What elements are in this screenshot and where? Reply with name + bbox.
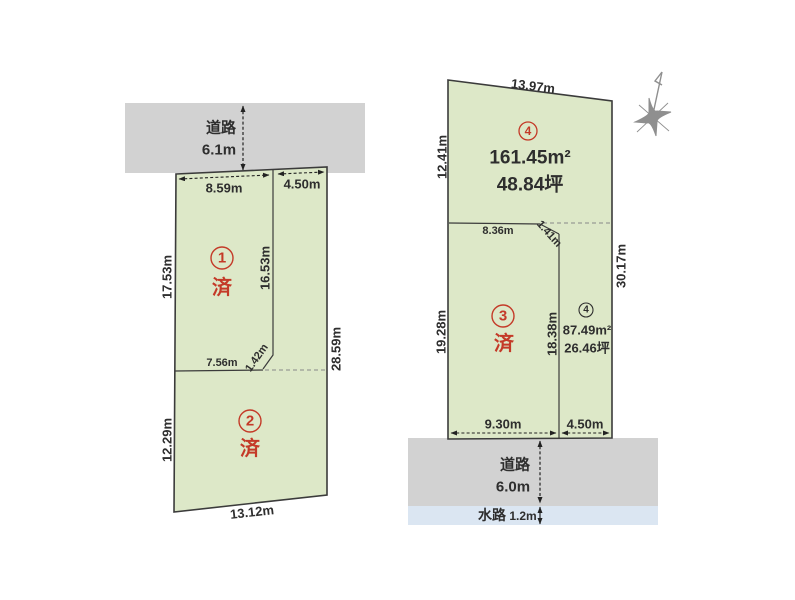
left-dim-top-left: 8.59m: [206, 181, 243, 196]
lot4-lower-number: 4: [583, 305, 589, 316]
left-road-label: 道路: [206, 119, 237, 137]
lot4-area-tsubo: 48.84坪: [497, 174, 564, 196]
waterway-width: 1.2m: [509, 509, 536, 523]
left-dim-left-lower: 12.29m: [160, 418, 175, 462]
lot1-number: 1: [218, 250, 226, 267]
right-dim-left-lower: 19.28m: [434, 310, 449, 354]
left-dim-left-upper: 17.53m: [160, 255, 175, 299]
right-dim-bottom-left: 9.30m: [485, 417, 522, 432]
right-dim-right-side: 30.17m: [614, 244, 629, 288]
right-road-strip: [408, 438, 658, 506]
right-dim-left-upper: 12.41m: [435, 135, 450, 179]
left-road-strip: [125, 103, 365, 173]
right-dim-bottom-right: 4.50m: [567, 417, 604, 432]
lot3-status: 済: [494, 331, 515, 355]
lot4-number: 4: [525, 124, 532, 138]
right-site-plan: 13.97m 4 161.45m² 48.84坪 12.41m 30.17m 1…: [408, 76, 658, 525]
lot1-status: 済: [212, 275, 233, 299]
waterway-label: 水路: [478, 507, 507, 523]
lot3-number: 3: [499, 308, 507, 325]
left-dim-right-side: 28.59m: [329, 327, 344, 371]
diagram-canvas: 道路 6.1m 8.59m 4.50m 17.53m 16.53m 28.59m…: [0, 0, 795, 600]
right-road-width: 6.0m: [496, 479, 530, 496]
right-dim-inner-vertical: 18.38m: [545, 312, 560, 356]
lot4-area-m2: 161.45m²: [489, 148, 570, 169]
left-dim-top-right: 4.50m: [284, 177, 321, 192]
left-road-width: 6.1m: [202, 142, 236, 159]
land-plot-diagram: 道路 6.1m 8.59m 4.50m 17.53m 16.53m 28.59m…: [0, 0, 795, 600]
lot2-status: 済: [240, 436, 261, 460]
left-dim-inner-vertical: 16.53m: [258, 246, 273, 290]
lot2-number: 2: [246, 413, 254, 430]
right-dim-mid-horizontal: 8.36m: [482, 225, 513, 237]
right-road-label: 道路: [500, 456, 531, 474]
lot4-lower-area-m2: 87.49m²: [563, 323, 612, 338]
left-plot-outline: [174, 167, 327, 512]
north-compass-icon: [635, 72, 671, 136]
left-site-plan: 道路 6.1m 8.59m 4.50m 17.53m 16.53m 28.59m…: [125, 103, 365, 522]
left-dim-mid-horizontal: 7.56m: [206, 357, 237, 369]
lot4-lower-area-tsubo: 26.46坪: [564, 341, 610, 356]
